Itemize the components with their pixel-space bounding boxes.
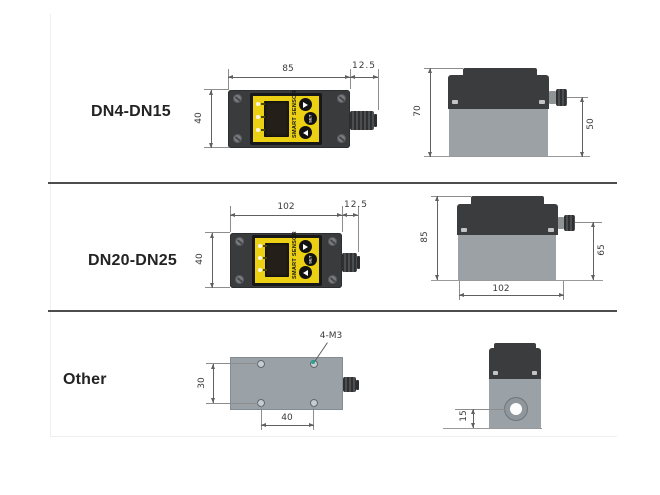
- extension-line: [206, 403, 258, 404]
- cable-connector: [564, 215, 575, 231]
- dim-value-connector: 12.5: [338, 200, 374, 210]
- down-arrow-icon: [303, 270, 308, 276]
- led-label: [263, 269, 267, 271]
- sensor-front-panel: SMART SENSOR SET: [250, 93, 322, 145]
- dim-line-height: [430, 68, 431, 157]
- dim-line-hole-spacing-h: [261, 425, 314, 426]
- housing-screw-mark: [539, 100, 545, 104]
- dim-line-body-height: [582, 97, 583, 157]
- housing-screw-mark: [452, 100, 458, 104]
- dim-value-width: 102: [266, 202, 306, 212]
- lcd-display: [264, 101, 289, 137]
- dim-value-height: 70: [413, 96, 423, 126]
- dim-line-width: [228, 77, 350, 78]
- extension-line: [205, 232, 230, 233]
- dim-value-height: 85: [420, 222, 430, 252]
- up-arrow-icon: [303, 102, 308, 108]
- dim-line-depth: [212, 233, 213, 288]
- mounting-hole: [257, 360, 265, 368]
- cable-connector-tip: [356, 380, 359, 390]
- set-button: SET: [304, 253, 317, 266]
- dim-value-body-height: 50: [586, 109, 596, 139]
- housing-screw-mark: [493, 371, 498, 375]
- row-separator-2: [48, 310, 617, 312]
- dim-line-connector: [342, 215, 358, 216]
- status-led: [256, 115, 260, 119]
- housing-cap: [471, 196, 544, 204]
- status-led: [258, 268, 262, 272]
- lcd-display: [265, 243, 289, 277]
- led-label: [261, 116, 265, 118]
- extension-line: [567, 97, 588, 98]
- dim-line-depth: [211, 90, 212, 148]
- extension-line: [230, 206, 231, 232]
- led-label: [263, 245, 267, 247]
- dim-value-port-offset: 15: [459, 401, 469, 431]
- sensor-body: [458, 235, 556, 280]
- dim-line-width: [230, 215, 342, 216]
- housing-head: [457, 204, 558, 235]
- dim-line-port-offset: [473, 409, 474, 428]
- sensor-body: [449, 109, 548, 157]
- down-arrow-button: [299, 126, 312, 139]
- dim-value-depth: 40: [195, 244, 205, 274]
- baseline: [431, 280, 603, 281]
- corner-screw: [337, 134, 346, 143]
- cable-connector-tip: [374, 114, 377, 127]
- set-button: SET: [304, 112, 317, 125]
- dim-line-connector: [350, 77, 378, 78]
- size-range-label: Other: [63, 371, 107, 389]
- corner-screw: [235, 237, 244, 246]
- dim-line-height: [437, 196, 438, 280]
- corner-screw: [328, 237, 337, 246]
- dim-value-width: 85: [268, 64, 308, 74]
- dimension-drawing-sheet: DN4-DN15 SMART SENSOR SET: [0, 0, 660, 495]
- size-range-label: DN4-DN15: [91, 103, 171, 121]
- thread-callout: 4-M3: [311, 331, 351, 341]
- extension-line: [378, 69, 379, 110]
- status-led: [256, 128, 260, 132]
- down-arrow-button: [299, 266, 312, 279]
- housing-screw-mark: [461, 228, 467, 232]
- down-arrow-icon: [303, 130, 308, 136]
- sensor-front-panel: SMART SENSOR SET: [252, 235, 322, 286]
- baseline: [424, 156, 590, 157]
- set-button-label: SET: [308, 255, 313, 263]
- connector-base: [549, 91, 556, 104]
- dim-line-body-height: [593, 222, 594, 280]
- housing-screw-mark: [532, 371, 537, 375]
- dim-value-bottom-width: 102: [481, 284, 521, 294]
- dim-value-hole-spacing-v: 30: [197, 368, 207, 398]
- dim-value-hole-spacing-h: 40: [272, 413, 302, 423]
- led-label: [261, 129, 265, 131]
- row-separator-1: [48, 182, 617, 184]
- callout-hole-marker: [311, 360, 315, 364]
- extension-line: [459, 281, 460, 300]
- housing-screw-mark: [548, 228, 554, 232]
- dim-value-connector: 12.5: [346, 61, 382, 71]
- extension-line: [228, 69, 229, 89]
- baseline: [443, 428, 542, 429]
- cable-connector: [556, 89, 567, 106]
- up-arrow-icon: [303, 244, 308, 250]
- cable-connector: [350, 111, 374, 130]
- dim-line-hole-spacing-v: [213, 364, 214, 403]
- corner-screw: [233, 134, 242, 143]
- status-led: [258, 244, 262, 248]
- corner-screw: [235, 275, 244, 284]
- size-range-label: DN20-DN25: [88, 252, 177, 270]
- housing-head: [448, 75, 549, 109]
- extension-line: [358, 206, 359, 252]
- extension-line: [204, 89, 229, 90]
- dim-line-bottom-width: [459, 295, 564, 296]
- up-arrow-button: [299, 98, 312, 111]
- led-label: [263, 257, 267, 259]
- cable-connector: [343, 377, 356, 392]
- corner-screw: [337, 94, 346, 103]
- cable-connector: [342, 253, 357, 272]
- extension-line: [350, 69, 351, 89]
- dim-value-body-height: 65: [597, 235, 607, 265]
- brand-text: SMART SENSOR: [292, 98, 298, 138]
- extension-line: [575, 222, 602, 223]
- led-label: [261, 103, 265, 105]
- flow-port-bore: [510, 403, 522, 415]
- cable-connector-tip: [357, 256, 360, 269]
- corner-screw: [328, 275, 337, 284]
- status-led: [256, 102, 260, 106]
- status-led: [258, 256, 262, 260]
- corner-screw: [233, 94, 242, 103]
- extension-line: [205, 287, 230, 288]
- sheet-bottom-edge: [50, 436, 617, 437]
- set-button-label: SET: [308, 114, 313, 122]
- extension-line: [563, 281, 564, 300]
- sheet-left-edge: [50, 14, 51, 437]
- mounting-hole: [310, 399, 318, 407]
- up-arrow-button: [299, 240, 312, 253]
- dim-value-depth: 40: [194, 103, 204, 133]
- brand-text: SMART SENSOR: [292, 239, 298, 279]
- extension-line: [204, 147, 229, 148]
